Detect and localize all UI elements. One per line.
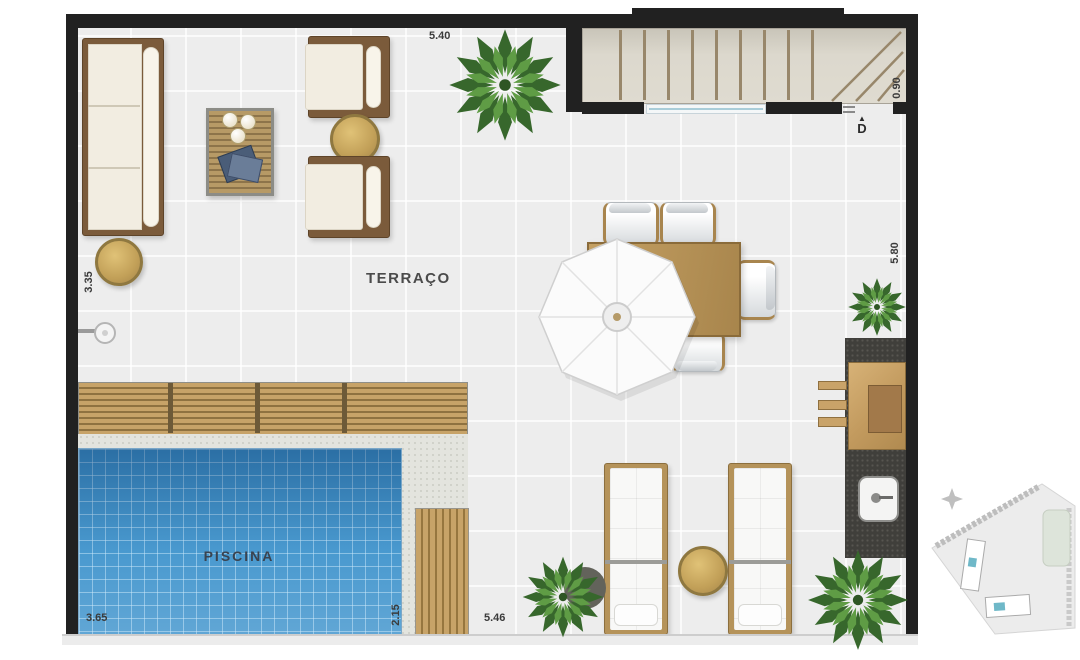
umbrella <box>539 239 699 401</box>
floor-plan-canvas: 5.40 0.90 5.80 3.35 3.65 2.15 5.46 ▲ D T… <box>0 0 1080 660</box>
plant <box>449 29 560 140</box>
plant <box>808 550 908 650</box>
shower <box>78 323 115 343</box>
dimension-stair-depth: 0.90 <box>891 71 903 105</box>
terrace-label: TERRAÇO <box>366 270 451 287</box>
dimension-pool-length: 3.65 <box>86 612 107 624</box>
dimension-right: 5.80 <box>889 236 901 270</box>
dimension-top: 5.40 <box>429 30 450 42</box>
dimension-pool-width: 2.15 <box>390 598 402 632</box>
dimension-bottom: 5.46 <box>484 612 505 624</box>
dimension-left: 3.35 <box>83 265 95 299</box>
plant <box>848 278 906 336</box>
compass-icon <box>941 488 963 510</box>
door-marker: ▲ D <box>850 114 874 134</box>
door-letter: D <box>857 121 866 136</box>
site-plan-thumbnail <box>932 484 1075 634</box>
pool-label: PISCINA <box>78 548 400 564</box>
